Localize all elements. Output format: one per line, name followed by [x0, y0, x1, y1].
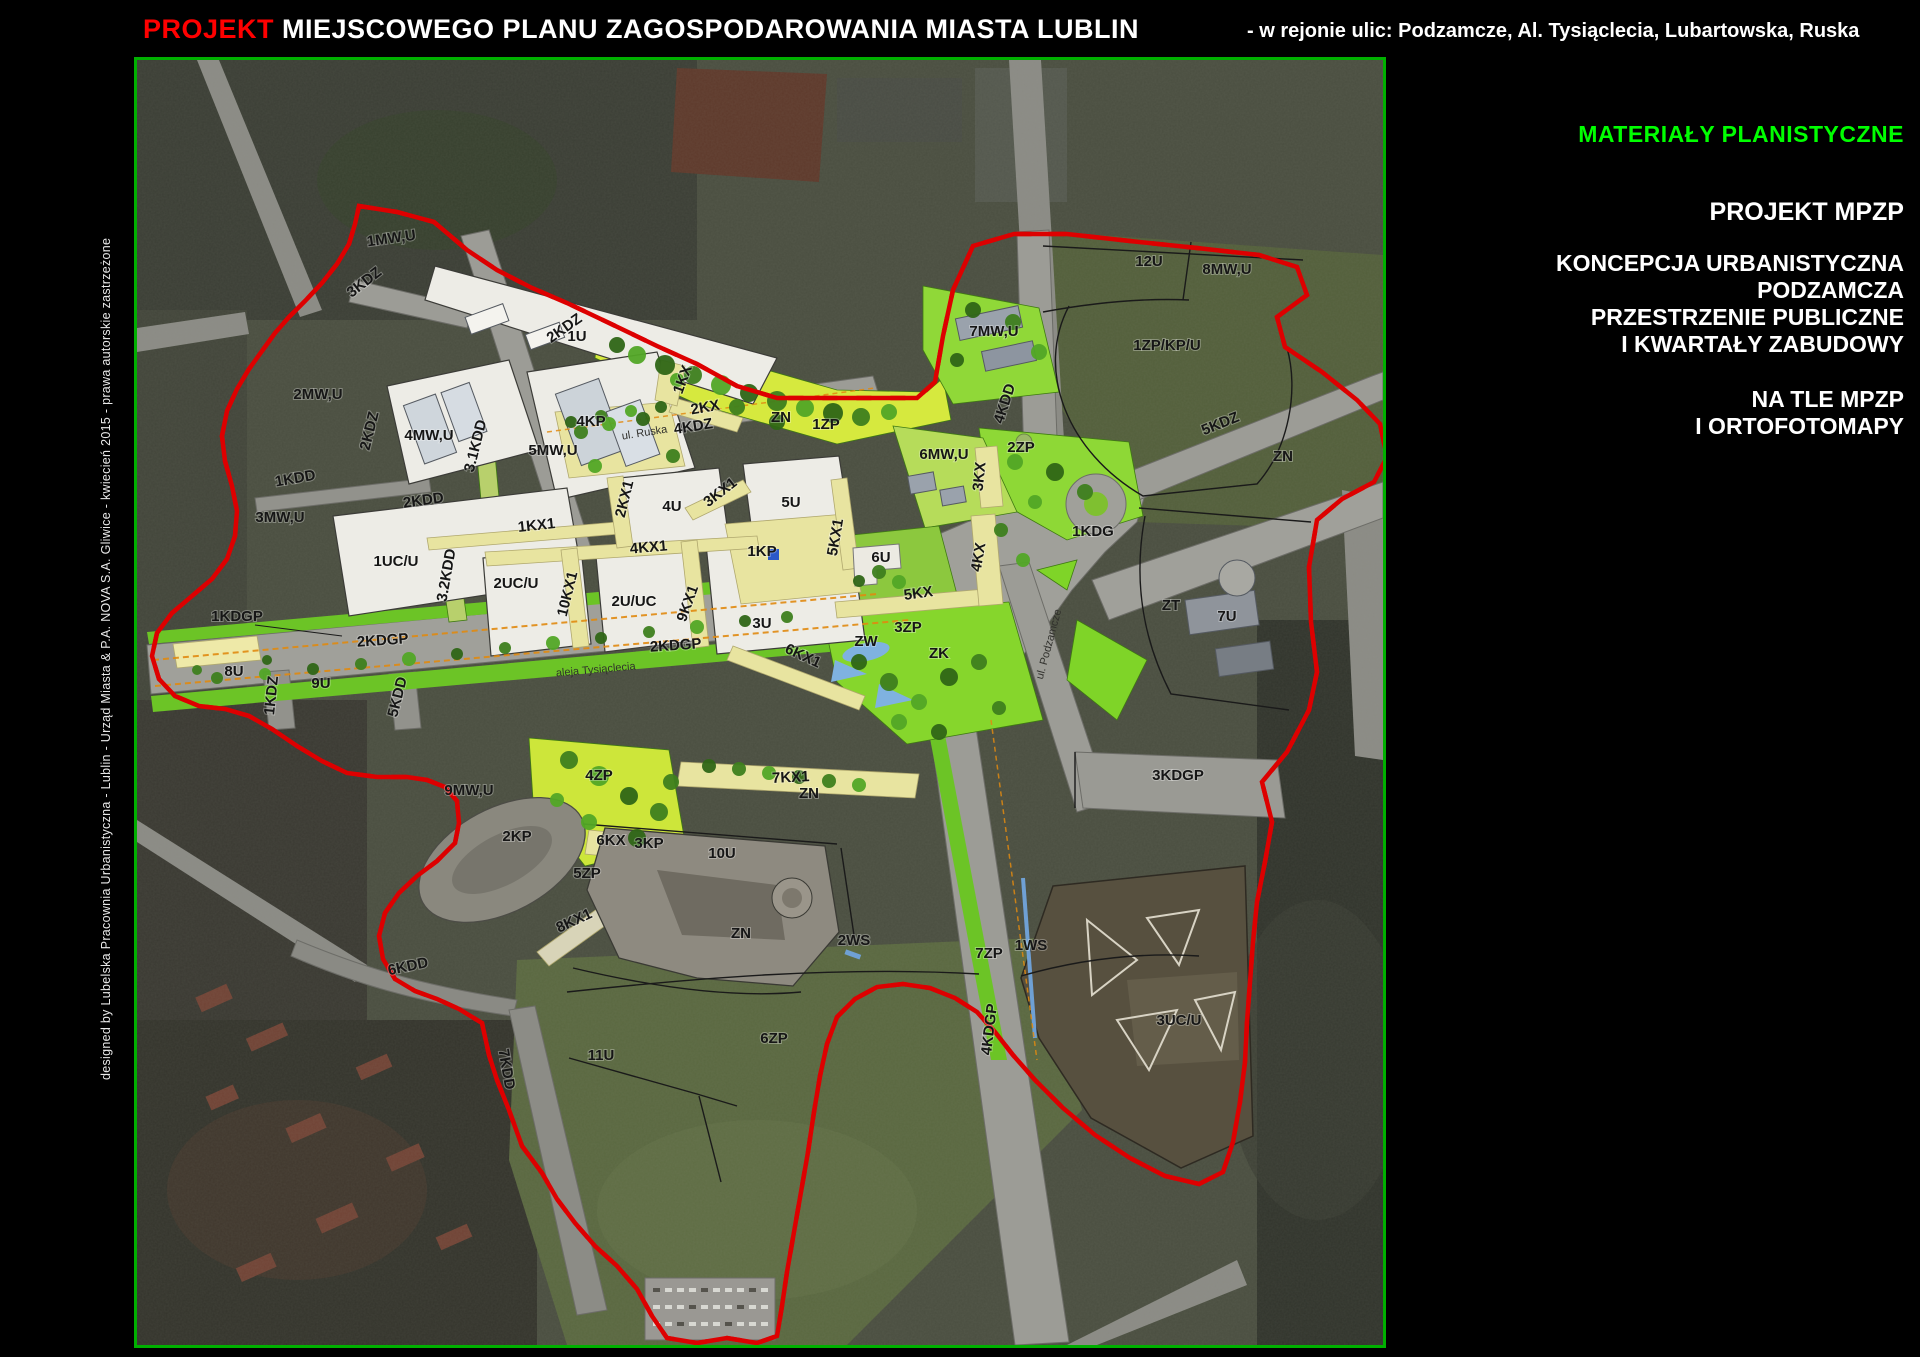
panel-natle-block: NA TLE MPZP I ORTOFOTOMAPY — [1695, 386, 1904, 440]
zone-label: 2KDGP — [356, 630, 409, 651]
projekt-label: PROJEKT — [143, 14, 274, 44]
panel-projekt-mpzp: PROJEKT MPZP — [1710, 198, 1904, 227]
zone-label: 10U — [708, 845, 736, 862]
zone-label: 1KDGP — [211, 608, 263, 625]
zone-label: ZT — [1162, 597, 1180, 614]
page-title: PROJEKT MIEJSCOWEGO PLANU ZAGOSPODAROWAN… — [143, 14, 1139, 45]
header-subtitle: - w rejonie ulic: Podzamcze, Al. Tysiącl… — [1247, 20, 1859, 43]
zone-label: 3KX — [970, 461, 990, 492]
zone-label: 8U — [224, 663, 243, 680]
panel-line: PODZAMCZA — [1556, 277, 1904, 304]
zone-label: 6ZP — [760, 1030, 788, 1047]
zone-label: 3MW,U — [255, 509, 304, 526]
zone-label: 1ZP — [812, 416, 840, 433]
zone-label: 1KDG — [1072, 523, 1114, 540]
zone-label: ZW — [854, 633, 878, 650]
zone-label: 1ZP/KP/U — [1133, 337, 1201, 354]
panel-line: KONCEPCJA URBANISTYCZNA — [1556, 250, 1904, 277]
panel-line: I ORTOFOTOMAPY — [1695, 413, 1904, 440]
zone-label: 4KX1 — [629, 537, 668, 557]
zone-label: 12U — [1135, 253, 1163, 270]
zone-label: 9U — [311, 675, 330, 692]
zone-label: 3KDGP — [1152, 767, 1204, 784]
zone-label: 4ZP — [585, 767, 613, 784]
panel-line: NA TLE MPZP — [1695, 386, 1904, 413]
zone-label: 1UC/U — [373, 553, 418, 570]
credit-text: designed by Lubelska Pracownia Urbanisty… — [99, 238, 113, 1080]
panel-heading: MATERIAŁY PLANISTYCZNE — [1578, 121, 1904, 148]
zone-label: 1WS — [1015, 937, 1048, 954]
zone-label: 7U — [1217, 608, 1236, 625]
zone-label: 11U — [588, 1047, 615, 1064]
zone-label: 3KP — [634, 835, 663, 852]
zone-label: 4MW,U — [404, 427, 453, 444]
header-bar: PROJEKT MIEJSCOWEGO PLANU ZAGOSPODAROWAN… — [0, 0, 1920, 57]
zone-label: 3U — [752, 615, 771, 632]
zone-label: 3UC/U — [1156, 1012, 1201, 1029]
zone-label: 6KX — [596, 832, 625, 849]
zone-label: 5U — [781, 494, 800, 511]
zone-label: 2U/UC — [611, 593, 656, 610]
zone-label: ZK — [929, 645, 949, 662]
zone-label: 1KP — [747, 543, 776, 560]
zone-label: 4U — [662, 498, 681, 515]
zone-label: 2ZP — [1007, 439, 1035, 456]
zone-label: 9MW,U — [444, 782, 493, 799]
plan-map: 1MW,U3KDZ2MW,U1KDD3MW,U4MW,U2KDZ2KDZ3.1K… — [137, 60, 1383, 1345]
zone-label: 4KP — [576, 413, 605, 430]
zone-label: 2UC/U — [493, 575, 538, 592]
zone-label: ZN — [799, 785, 819, 802]
map-frame: 1MW,U3KDZ2MW,U1KDD3MW,U4MW,U2KDZ2KDZ3.1K… — [134, 57, 1386, 1348]
zone-label: 7ZP — [975, 945, 1003, 962]
zone-label: 3ZP — [894, 619, 922, 636]
zone-label: 6MW,U — [919, 446, 968, 463]
panel-line: I KWARTAŁY ZABUDOWY — [1556, 331, 1904, 358]
zone-label: 5ZP — [573, 865, 601, 882]
zone-label: ZN — [771, 409, 791, 426]
zone-label: 7MW,U — [969, 323, 1018, 340]
zone-label: 8MW,U — [1202, 261, 1251, 278]
panel-line: PRZESTRZENIE PUBLICZNE — [1556, 304, 1904, 331]
panel-koncepcja-block: KONCEPCJA URBANISTYCZNA PODZAMCZA PRZEST… — [1556, 250, 1904, 358]
zone-label: 2MW,U — [293, 386, 342, 403]
title-text: MIEJSCOWEGO PLANU ZAGOSPODAROWANIA MIAST… — [274, 14, 1139, 44]
zone-label: 6U — [871, 549, 890, 566]
zone-label: ZN — [731, 925, 751, 942]
zone-label: 5MW,U — [528, 442, 577, 459]
zone-label: 2WS — [838, 932, 871, 949]
zone-label: 2KP — [502, 828, 531, 845]
zone-label: 1U — [567, 328, 586, 345]
zone-label: 2KDGP — [649, 635, 702, 656]
zone-label: ZN — [1273, 448, 1293, 465]
